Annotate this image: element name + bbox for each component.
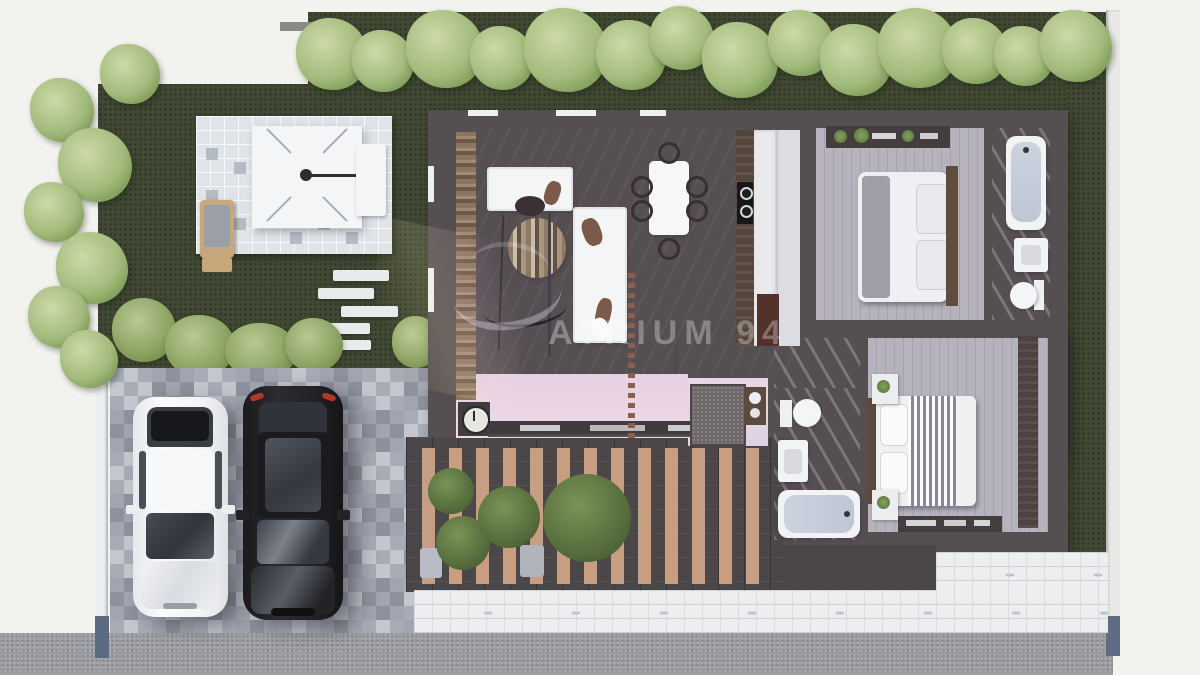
- window: [428, 166, 434, 202]
- shelf-decor: [944, 520, 966, 526]
- white-car-roof: [146, 449, 214, 511]
- patio-bench: [356, 144, 386, 216]
- black-car-rear-glass: [259, 402, 327, 434]
- nightstand-plant: [877, 380, 890, 393]
- white-car-side-window: [139, 451, 146, 509]
- white-car-mirror: [222, 505, 235, 514]
- dining-chair: [631, 200, 653, 222]
- bed1-pillow: [916, 240, 948, 290]
- parasol-hub: [300, 169, 312, 181]
- toilet1-bowl: [1010, 282, 1037, 309]
- hall-bowl: [750, 408, 760, 418]
- tree: [24, 182, 84, 242]
- toilet2-tank: [780, 400, 792, 427]
- toilet2-bowl: [793, 399, 821, 427]
- rug-plant: [515, 196, 545, 216]
- tree: [100, 44, 160, 104]
- walkway-bottom: [414, 590, 1108, 633]
- shelf-plant: [834, 130, 847, 143]
- patio-tile: [290, 232, 302, 244]
- console-decor: [520, 425, 560, 431]
- lounge-cushion: [204, 205, 230, 247]
- right-fence-post: [1106, 616, 1120, 656]
- window: [468, 110, 498, 116]
- dining-chair: [686, 200, 708, 222]
- planter-pot: [520, 545, 544, 577]
- right-fence: [1106, 10, 1120, 635]
- floor-plan-render: ATRIUM 94: [0, 0, 1200, 675]
- shelf-plant: [902, 130, 914, 142]
- black-car-roof-reflection: [265, 438, 321, 512]
- tree: [352, 30, 414, 92]
- bed1-headboard: [946, 166, 958, 306]
- bathtub2-drain: [844, 511, 850, 517]
- watermark-text: ATRIUM 94: [548, 314, 788, 353]
- bed2-pillow: [880, 404, 908, 446]
- shelf-plant: [854, 128, 869, 143]
- black-car-mirror: [337, 510, 350, 520]
- wardrobe2: [1018, 336, 1038, 528]
- patio-tile: [234, 218, 246, 230]
- white-car-windshield: [146, 513, 214, 559]
- shelf-decor: [974, 520, 990, 526]
- bush: [285, 318, 343, 372]
- dining-chair: [631, 176, 653, 198]
- bathtub1-drain: [1023, 147, 1029, 153]
- white-car-sunroof: [151, 411, 209, 441]
- left-fence-post: [95, 616, 109, 658]
- black-car-hood: [251, 566, 335, 614]
- white-car-hood: [141, 561, 219, 609]
- bed1-throw: [862, 176, 890, 298]
- tree: [60, 330, 118, 388]
- burner: [740, 187, 753, 200]
- deck-plant: [428, 468, 474, 514]
- grass-right-strip: [1066, 16, 1108, 554]
- bed2-headboard: [866, 398, 876, 504]
- doormat: [690, 384, 746, 446]
- deck-plant: [543, 474, 631, 562]
- parasol-arm: [307, 174, 361, 177]
- sink1-basin: [1021, 245, 1041, 265]
- window: [640, 110, 666, 116]
- patio-tile: [346, 232, 358, 244]
- patio-tile: [234, 162, 246, 174]
- patio-tile: [206, 148, 218, 160]
- shelf-decor: [920, 133, 938, 139]
- patio-side-table: [202, 258, 232, 272]
- white-car-mirror: [126, 505, 139, 514]
- bed1-pillow: [916, 184, 948, 234]
- stepping-stone: [318, 288, 374, 299]
- black-car-windshield: [257, 520, 329, 564]
- left-fence: [96, 375, 108, 623]
- bathtub1-basin: [1011, 142, 1041, 222]
- shelf-decor: [906, 520, 936, 526]
- dining-chair: [658, 142, 680, 164]
- dining-chair: [686, 176, 708, 198]
- clock-hand: [473, 411, 475, 421]
- black-car-front: [271, 608, 315, 616]
- dining-table: [649, 161, 689, 235]
- burner: [740, 205, 753, 218]
- bed2-striped-throw: [908, 396, 956, 506]
- sink2-basin: [784, 449, 802, 474]
- window: [556, 110, 596, 116]
- tree: [1040, 10, 1112, 82]
- bed2-pillow: [880, 452, 908, 494]
- console-decor: [590, 425, 645, 431]
- slat-divider: [628, 268, 635, 438]
- white-car: [133, 393, 228, 619]
- dining-chair: [658, 238, 680, 260]
- deck-plant: [478, 486, 540, 548]
- white-car-grille: [163, 603, 197, 609]
- nightstand-plant: [877, 496, 890, 509]
- wall-clock: [462, 406, 490, 434]
- road: [0, 633, 1113, 675]
- white-car-side-window: [215, 451, 222, 509]
- shelf-decor: [872, 133, 896, 139]
- black-car: [243, 386, 343, 624]
- walkway-right: [936, 552, 1108, 592]
- dark-walkway-extension: [784, 545, 936, 592]
- black-car-mirror: [236, 510, 249, 520]
- tree: [702, 22, 778, 98]
- hall-bowl: [749, 392, 761, 404]
